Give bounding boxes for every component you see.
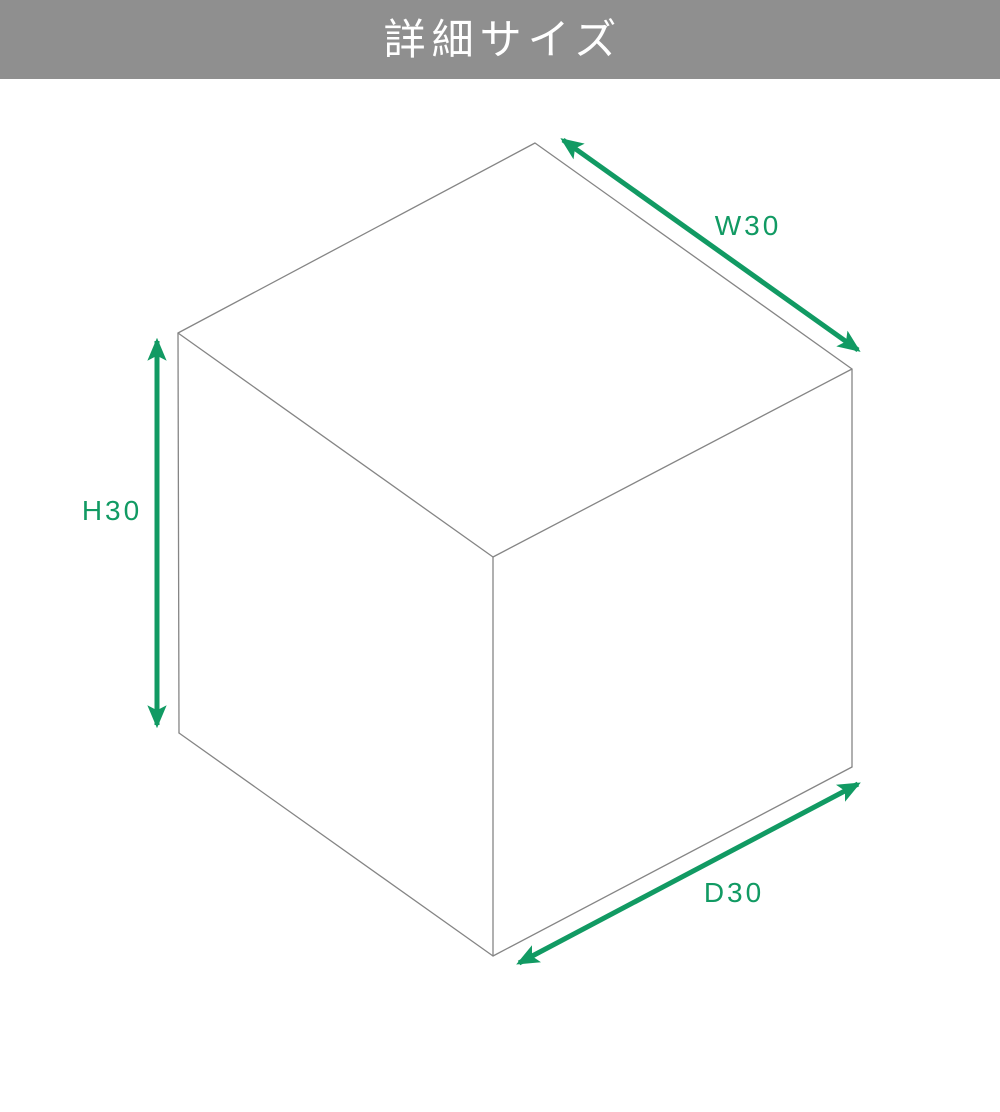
depth-arrow	[519, 784, 858, 963]
height-dimension-label: H30	[82, 495, 142, 526]
cube-top-face	[178, 143, 852, 557]
depth-dimension-label: D30	[704, 877, 764, 908]
cube-bottom-edges	[179, 733, 852, 956]
width-dimension: W30	[563, 140, 858, 350]
cube-wireframe	[178, 143, 852, 956]
depth-dimension: D30	[519, 784, 858, 963]
page: { "header": { "title": "詳細サイズ" }, "diagr…	[0, 0, 1000, 1112]
cube-vertical-edges	[178, 333, 852, 956]
height-dimension: H30	[82, 341, 157, 725]
width-arrow	[563, 140, 858, 350]
size-diagram: W30 H30 D30	[0, 0, 1000, 1112]
width-dimension-label: W30	[715, 210, 782, 241]
